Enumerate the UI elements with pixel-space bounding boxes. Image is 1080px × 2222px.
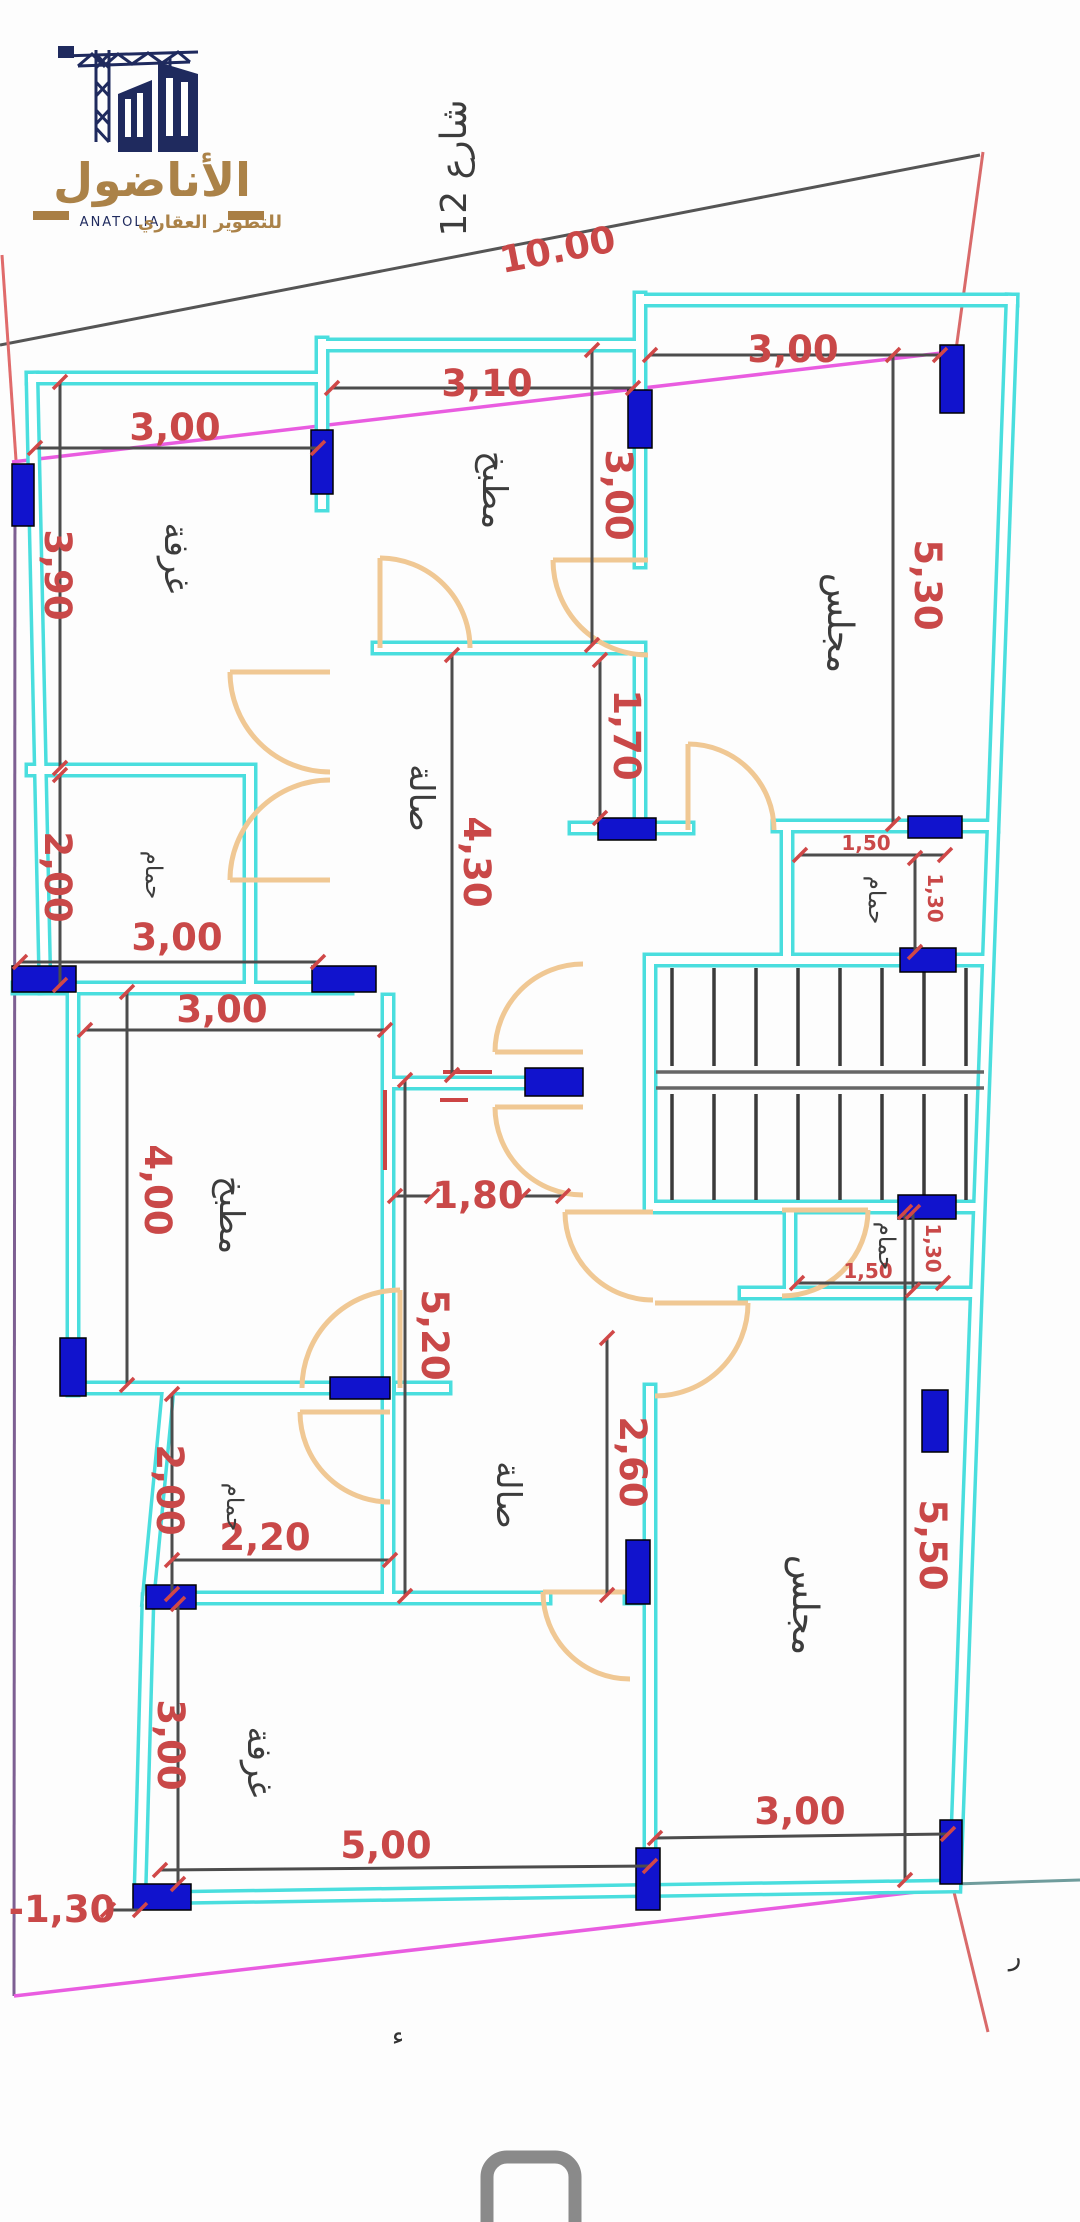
dim-kitchen-top-height: 3,00 [597, 449, 640, 540]
floor-plan-screenshot: الأناضول ANATOLIA للتطوير العقاري شارع 1… [0, 0, 1080, 2222]
dimension-lines [13, 343, 955, 1917]
nav-home-button[interactable] [487, 2157, 575, 2222]
crane-counterweight [58, 46, 74, 58]
doors [230, 558, 868, 1679]
room-bath-lower-left: حمام [221, 1483, 247, 1532]
dim-bath-lr-height: 1,30 [921, 1223, 945, 1272]
left-red-boundary [2, 255, 16, 460]
purple-boundary-left [14, 465, 15, 1996]
dim-corridor-width: 1,80 [432, 1174, 523, 1217]
stray-mark-1: ء [392, 2022, 404, 2052]
dim-bedroom-tl-width: 3,00 [129, 406, 220, 449]
room-bath-upper-right: حمام [863, 876, 889, 925]
room-hall-upper: صالة [401, 764, 441, 832]
dim-setback: -1,30 [9, 1888, 116, 1931]
dim-bath-ur-height: 1,30 [923, 873, 947, 922]
door-stair-exit [565, 1212, 653, 1300]
door-majlis-bottom [655, 1303, 748, 1396]
door-bath-lower-left [300, 1412, 390, 1502]
stairs [656, 968, 984, 1200]
right-red-boundary-top [956, 152, 983, 350]
dim-bath-ll-height: 2,00 [148, 1444, 191, 1535]
dim-street-frontage: 10.00 [496, 217, 619, 282]
dim-kitchen-lower-height: 4,00 [136, 1144, 179, 1235]
room-majlis-top: مجلس [819, 573, 860, 673]
dim-bedroom-b-width: 5,00 [340, 1824, 431, 1867]
stray-mark-2: ر [1007, 1942, 1022, 1972]
dim-kitchen-top-width: 3,10 [441, 362, 532, 405]
dim-kitchen-lower-width: 3,00 [176, 988, 267, 1031]
room-bedroom-top-left: غرفة [156, 522, 196, 593]
room-majlis-bottom: مجلس [784, 1555, 825, 1655]
dim-hall-lower-right-height: 2,60 [611, 1416, 654, 1507]
dim-bath-ur-width: 1,50 [841, 831, 890, 855]
dim-left-wall-width: 3,00 [131, 916, 222, 959]
right-red-boundary-bottom [953, 1888, 988, 2032]
dim-bedroom-tl-height: 3,90 [36, 529, 79, 620]
dim-majlis-top-width: 3,00 [747, 328, 838, 371]
room-kitchen-lower: مطبخ [211, 1176, 251, 1254]
street-label: شارع 12 [434, 99, 475, 236]
dim-hall-lower-height: 5,20 [413, 1289, 456, 1380]
logo-dash-right [228, 211, 264, 220]
room-bath-lower-right: حمام [873, 1222, 899, 1271]
door-bath-upper-right [688, 744, 774, 830]
company-logo: الأناضول ANATOLIA للتطوير العقاري [33, 46, 282, 233]
logo-dash-left [33, 211, 69, 220]
door-hall-divider-upper [495, 964, 583, 1052]
logo-brand-arabic: الأناضول [53, 152, 251, 207]
room-kitchen-top: مطبخ [474, 451, 514, 529]
room-bedroom-bottom: غرفة [239, 1726, 279, 1797]
dim-hall-majlis-gap: 1,70 [605, 689, 648, 780]
door-bedroom-bottom [543, 1592, 630, 1679]
door-entrance-upper [230, 672, 330, 772]
floor-plan-canvas: الأناضول ANATOLIA للتطوير العقاري شارع 1… [0, 0, 1080, 2222]
bottom-right-extension-line [955, 1880, 1080, 1884]
room-bath-upper-left: حمام [140, 851, 166, 900]
buildings-icon [118, 62, 198, 152]
dim-bedroom-b-height: 3,00 [149, 1699, 192, 1790]
room-hall-lower: صالة [488, 1461, 528, 1529]
dim-hall-upper-height: 4,30 [455, 816, 498, 907]
dim-majlis-bottom-height: 5,50 [911, 1499, 954, 1590]
dim-majlis-top-height: 5,30 [906, 539, 949, 630]
dim-bath-ul-height: 2,00 [36, 831, 79, 922]
dim-majlis-bottom-width: 3,00 [754, 1790, 845, 1833]
door-kitchen-top [380, 558, 470, 648]
